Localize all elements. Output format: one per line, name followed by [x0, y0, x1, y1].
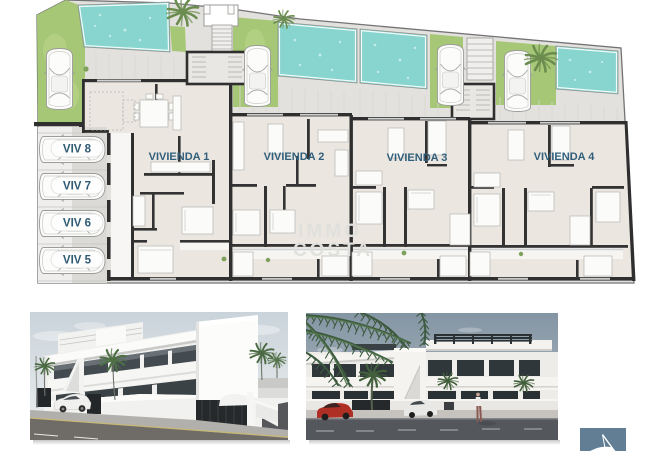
- svg-text:COSTA: COSTA: [293, 240, 373, 261]
- svg-text:VIV 5: VIV 5: [63, 255, 92, 267]
- svg-text:VIV 6: VIV 6: [63, 218, 91, 230]
- svg-text:VIV 7: VIV 7: [63, 181, 91, 193]
- svg-text:VIVIENDA 3: VIVIENDA 3: [387, 152, 448, 164]
- svg-text:IMMO: IMMO: [298, 221, 362, 242]
- svg-text:VIV 8: VIV 8: [63, 144, 92, 156]
- svg-text:VIVIENDA 1: VIVIENDA 1: [149, 151, 210, 163]
- svg-text:VIVIENDA 4: VIVIENDA 4: [534, 151, 596, 163]
- svg-text:VIVIENDA 2: VIVIENDA 2: [264, 151, 325, 163]
